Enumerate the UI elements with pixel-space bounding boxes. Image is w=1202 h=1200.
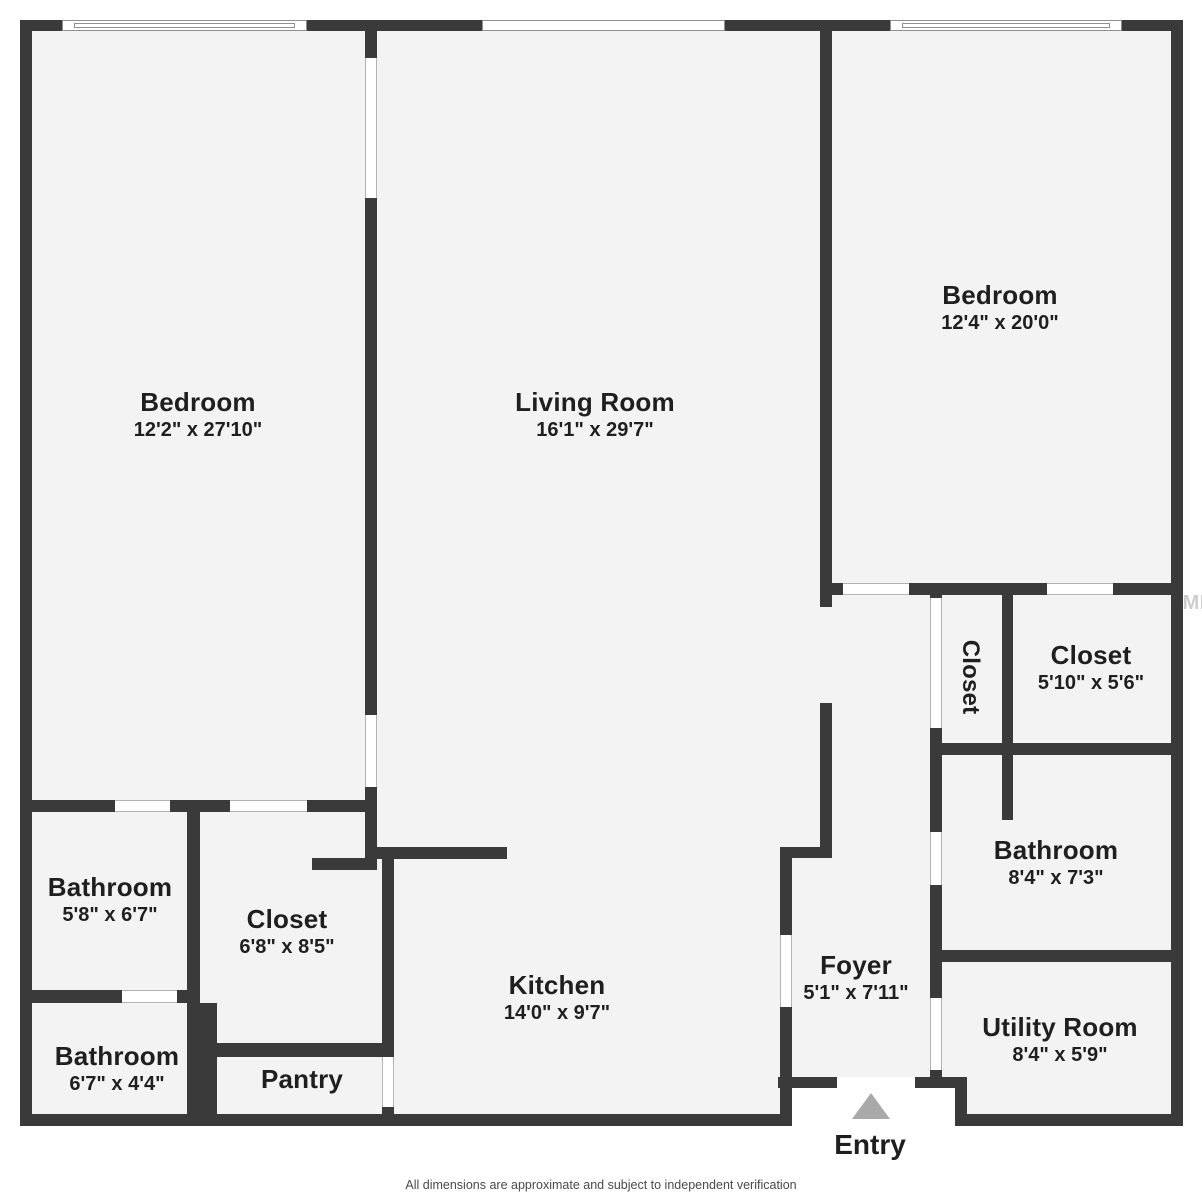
door-opening <box>365 58 377 198</box>
wall-segment <box>312 858 377 870</box>
door-opening <box>382 1057 394 1107</box>
room-name: Living Room <box>515 387 675 417</box>
window-glass <box>902 23 1110 28</box>
footer-disclaimer: All dimensions are approximate and subje… <box>0 1178 1202 1192</box>
wall-segment <box>187 1043 394 1057</box>
room-dimensions: 8'4" x 7'3" <box>994 865 1118 891</box>
door-opening <box>930 832 942 885</box>
room-label-living-room: Living Room16'1" x 29'7" <box>515 387 675 443</box>
entry-arrow-icon <box>852 1093 890 1119</box>
window-glass <box>74 23 295 28</box>
wall-segment <box>20 20 32 1126</box>
wall-segment <box>1002 583 1013 820</box>
floor-plan: Entry StellarMLS All dimensions are appr… <box>0 0 1202 1200</box>
room-label-foyer: Foyer5'1" x 7'11" <box>803 950 908 1006</box>
wall-segment <box>32 800 377 812</box>
room-dimensions: 14'0" x 9'7" <box>504 1000 610 1026</box>
room-dimensions: 16'1" x 29'7" <box>515 417 675 443</box>
window <box>62 20 307 31</box>
room-dimensions: 5'10" x 5'6" <box>1038 670 1144 696</box>
window <box>482 20 725 31</box>
floor-area <box>32 31 792 1116</box>
room-label-utility-room: Utility Room8'4" x 5'9" <box>982 1012 1138 1068</box>
room-dimensions: 6'8" x 8'5" <box>239 934 334 960</box>
door-opening <box>930 998 942 1070</box>
entry-label: Entry <box>834 1129 906 1161</box>
room-name: Foyer <box>803 950 908 980</box>
room-label-bathroom-bottom-left: Bathroom6'7" x 4'4" <box>55 1041 179 1097</box>
wall-segment <box>955 1077 967 1126</box>
room-name: Kitchen <box>504 970 610 1000</box>
wall-segment <box>187 812 200 1003</box>
door-opening <box>930 598 942 728</box>
wall-segment <box>930 950 1183 962</box>
room-label-bathroom-right: Bathroom8'4" x 7'3" <box>994 835 1118 891</box>
room-name: Bathroom <box>994 835 1118 865</box>
room-name: Pantry <box>261 1064 343 1094</box>
door-opening <box>115 800 170 812</box>
room-name: Bathroom <box>55 1041 179 1071</box>
wall-segment <box>780 847 832 858</box>
room-dimensions: 12'4" x 20'0" <box>941 310 1058 336</box>
room-label-bathroom-top-left: Bathroom5'8" x 6'7" <box>48 872 172 928</box>
room-label-closet-hall: Closet <box>955 640 985 715</box>
door-opening <box>837 1077 915 1088</box>
room-label-kitchen: Kitchen14'0" x 9'7" <box>504 970 610 1026</box>
door-opening <box>122 990 177 1003</box>
room-dimensions: 12'2" x 27'10" <box>134 417 263 443</box>
wall-segment <box>930 743 1183 755</box>
room-label-closet-right: Closet5'10" x 5'6" <box>1038 640 1144 696</box>
window <box>890 20 1122 31</box>
room-dimensions: 6'7" x 4'4" <box>55 1071 179 1097</box>
wall-segment <box>377 847 507 859</box>
door-opening <box>780 935 792 1007</box>
room-label-closet-left: Closet6'8" x 8'5" <box>239 904 334 960</box>
wall-segment <box>20 1114 792 1126</box>
room-label-bedroom-right: Bedroom12'4" x 20'0" <box>941 280 1058 336</box>
room-name: Bedroom <box>134 387 263 417</box>
room-dimensions: 8'4" x 5'9" <box>982 1042 1138 1068</box>
room-name: Utility Room <box>982 1012 1138 1042</box>
room-name: Closet <box>239 904 334 934</box>
wall-segment <box>955 1114 1183 1126</box>
room-label-pantry: Pantry <box>261 1064 343 1094</box>
door-opening <box>843 583 909 595</box>
door-opening <box>365 715 377 787</box>
room-name: Closet <box>1038 640 1144 670</box>
room-name: Bedroom <box>941 280 1058 310</box>
room-dimensions: 5'8" x 6'7" <box>48 902 172 928</box>
wall-segment <box>187 1003 217 1114</box>
door-opening <box>230 800 307 812</box>
room-name: Closet <box>955 640 985 715</box>
room-name: Bathroom <box>48 872 172 902</box>
room-dimensions: 5'1" x 7'11" <box>803 980 908 1006</box>
door-opening <box>1047 583 1113 595</box>
wall-segment <box>820 703 832 847</box>
wall-segment <box>820 20 832 607</box>
room-label-bedroom-left: Bedroom12'2" x 27'10" <box>134 387 263 443</box>
